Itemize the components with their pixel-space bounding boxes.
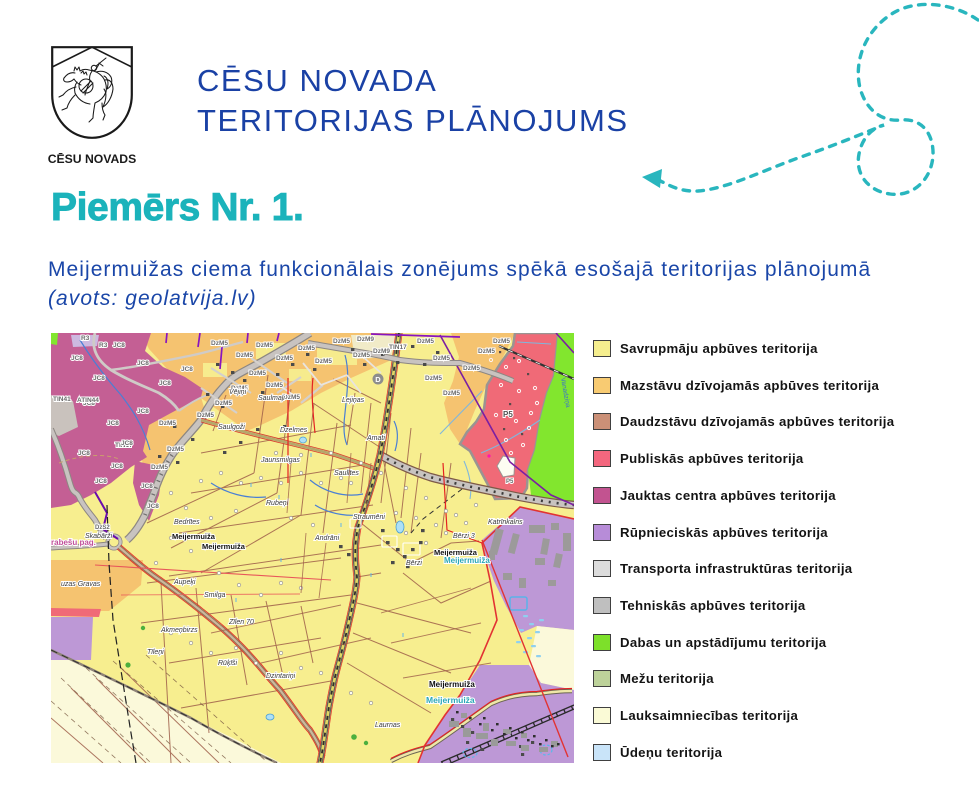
- svg-text:DzM5: DzM5: [197, 412, 214, 419]
- svg-text:Dzelmes: Dzelmes: [280, 427, 308, 434]
- svg-text:JC8: JC8: [95, 478, 107, 485]
- svg-text:Katrīnkalns: Katrīnkalns: [488, 519, 523, 526]
- svg-text:DzM5: DzM5: [425, 375, 442, 382]
- svg-text:DzM5: DzM5: [443, 390, 460, 397]
- svg-text:Dzintariņi: Dzintariņi: [266, 673, 296, 680]
- svg-text:JC8: JC8: [137, 360, 149, 367]
- svg-text:DzM5: DzM5: [493, 338, 510, 345]
- svg-text:Rubeņi: Rubeņi: [266, 500, 289, 507]
- svg-text:TIN41: TIN41: [53, 396, 71, 403]
- svg-text:JC8: JC8: [93, 375, 105, 382]
- svg-text:JC8: JC8: [111, 463, 123, 470]
- svg-text:DzM5: DzM5: [215, 400, 232, 407]
- svg-text:DzM5: DzM5: [478, 348, 495, 355]
- svg-text:DzM5: DzM5: [276, 355, 293, 362]
- svg-text:Meijermuiža: Meijermuiža: [444, 556, 490, 565]
- svg-text:DzM5: DzM5: [353, 352, 370, 359]
- svg-text:Straumēni: Straumēni: [353, 514, 385, 521]
- svg-text:Saulītes: Saulītes: [334, 470, 359, 477]
- svg-text:DzM5: DzM5: [151, 464, 168, 471]
- svg-text:Meijermuiža: Meijermuiža: [202, 542, 246, 551]
- svg-text:DzM5: DzM5: [283, 394, 300, 401]
- svg-text:Meijermuiža: Meijermuiža: [172, 532, 216, 541]
- svg-text:DzS2: DzS2: [95, 525, 110, 531]
- svg-text:Tīleņi: Tīleņi: [147, 649, 164, 656]
- svg-text:Bedrītes: Bedrītes: [174, 519, 200, 526]
- svg-text:rabešu pag.: rabešu pag.: [51, 538, 96, 547]
- svg-text:Jaunsmilgas: Jaunsmilgas: [260, 457, 300, 464]
- svg-text:Bērzi 3: Bērzi 3: [453, 533, 475, 540]
- svg-text:DzM5: DzM5: [417, 338, 434, 345]
- svg-text:R3: R3: [81, 335, 90, 342]
- svg-text:ATIN44: ATIN44: [77, 397, 99, 404]
- svg-text:Saulmaļi: Saulmaļi: [258, 395, 285, 402]
- svg-text:JC8: JC8: [159, 380, 171, 387]
- svg-text:Amati: Amati: [366, 435, 385, 442]
- svg-text:P5: P5: [506, 479, 514, 485]
- svg-text:Rūķīši: Rūķīši: [218, 660, 238, 667]
- svg-text:DzM5: DzM5: [159, 420, 176, 427]
- svg-text:Akmeņbirzs: Akmeņbirzs: [160, 627, 198, 634]
- svg-text:Meijermuiža: Meijermuiža: [426, 695, 475, 705]
- svg-text:TIN17: TIN17: [389, 344, 407, 351]
- svg-text:Smilga: Smilga: [204, 592, 226, 599]
- svg-text:DzM5: DzM5: [211, 340, 228, 347]
- svg-text:DzM5: DzM5: [315, 358, 332, 365]
- svg-text:JC8: JC8: [137, 408, 149, 415]
- svg-text:JC8: JC8: [78, 450, 90, 457]
- svg-text:DzM5: DzM5: [256, 342, 273, 349]
- svg-text:Andrāni: Andrāni: [314, 535, 340, 542]
- svg-text:DzM5: DzM5: [433, 355, 450, 362]
- svg-text:uzas Gravas: uzas Gravas: [61, 581, 101, 588]
- svg-text:Meijermuiža: Meijermuiža: [429, 680, 475, 689]
- svg-text:Aupeķi: Aupeķi: [173, 579, 196, 586]
- svg-text:R3: R3: [99, 342, 108, 349]
- svg-text:Saulgoži: Saulgoži: [218, 424, 245, 431]
- svg-text:DzM9: DzM9: [373, 348, 390, 355]
- svg-text:Lejiņas: Lejiņas: [342, 397, 365, 404]
- svg-text:Bērzi: Bērzi: [406, 560, 422, 567]
- svg-text:DzM5: DzM5: [236, 352, 253, 359]
- svg-text:JC8: JC8: [141, 483, 153, 490]
- svg-text:DzM5: DzM5: [167, 446, 184, 453]
- svg-text:JC8: JC8: [181, 366, 193, 373]
- svg-text:JC8: JC8: [147, 503, 159, 510]
- svg-text:DzM5: DzM5: [463, 365, 480, 372]
- svg-text:DzM5: DzM5: [298, 345, 315, 352]
- svg-text:JC8: JC8: [113, 342, 125, 349]
- svg-text:D: D: [375, 375, 381, 384]
- svg-text:P5: P5: [503, 410, 513, 419]
- svg-text:DzM9: DzM9: [357, 336, 374, 343]
- svg-text:DzM5: DzM5: [266, 382, 283, 389]
- svg-text:JC8: JC8: [107, 420, 119, 427]
- svg-text:DzM5: DzM5: [249, 370, 266, 377]
- svg-text:Vējiņi: Vējiņi: [229, 389, 247, 396]
- svg-text:DzM5: DzM5: [333, 338, 350, 345]
- svg-text:JC8: JC8: [121, 440, 133, 447]
- svg-text:JC8: JC8: [71, 355, 83, 362]
- svg-text:Laurnas: Laurnas: [375, 722, 401, 729]
